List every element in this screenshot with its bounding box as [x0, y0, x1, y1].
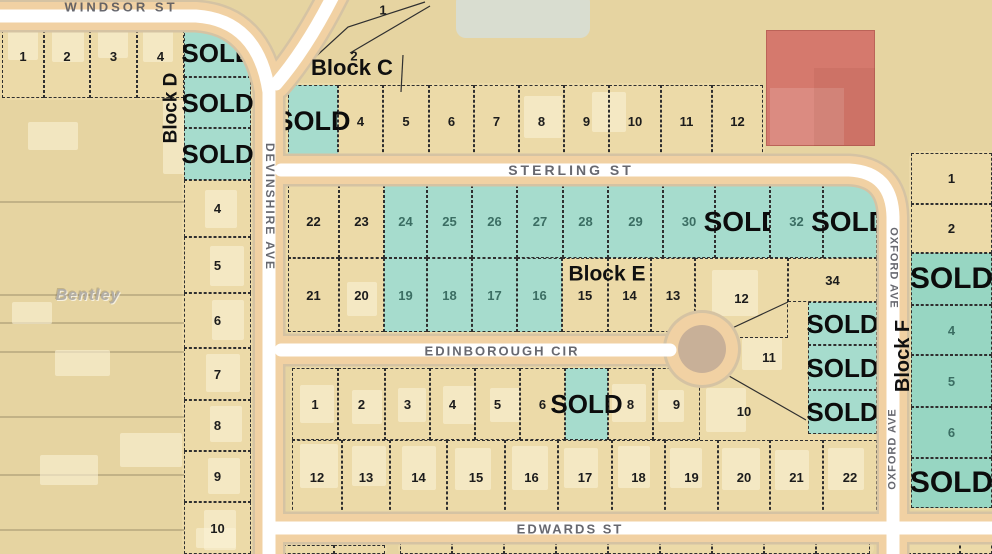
street-label: WINDSOR ST: [64, 1, 177, 14]
street-label: DEVINSHIRE AVE: [264, 143, 276, 271]
city-watermark: Bentley: [56, 288, 121, 304]
plat-map: 1234SOLDSOLDSOLD45678910SOLD456789101112…: [0, 0, 992, 554]
block-label: Block D: [162, 73, 181, 144]
labels-layer: WINDSOR STDEVINSHIRE AVESTERLING STEDINB…: [0, 0, 992, 554]
street-label: EDWARDS ST: [517, 523, 624, 536]
block-label: Block E: [568, 264, 645, 285]
street-label: OXFORD AVE: [888, 408, 899, 490]
block-label: Block F: [893, 320, 913, 392]
lot-number: 1: [379, 4, 386, 17]
street-label: OXFORD AVE: [888, 227, 899, 309]
street-label: STERLING ST: [508, 163, 634, 177]
street-label: EDINBOROUGH CIR: [425, 345, 580, 358]
lot-number: 2: [350, 50, 357, 63]
